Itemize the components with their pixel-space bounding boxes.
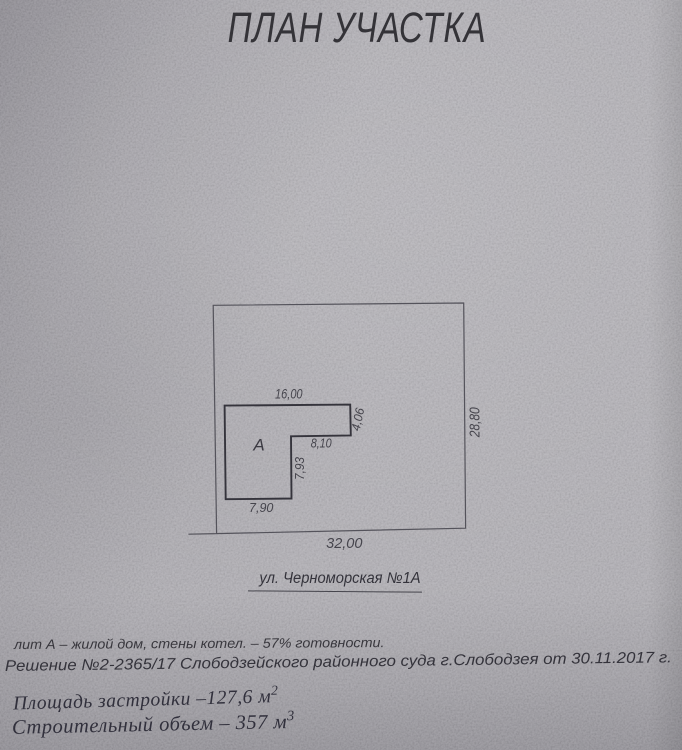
svg-text:8,10: 8,10 [311,436,332,450]
svg-text:7,90: 7,90 [249,501,273,515]
svg-text:А: А [252,436,264,455]
svg-text:4,06: 4,06 [349,407,367,432]
svg-text:32,00: 32,00 [326,536,362,552]
svg-text:16,00: 16,00 [275,386,303,401]
svg-text:7,93: 7,93 [293,457,307,480]
svg-text:28,80: 28,80 [467,407,483,438]
